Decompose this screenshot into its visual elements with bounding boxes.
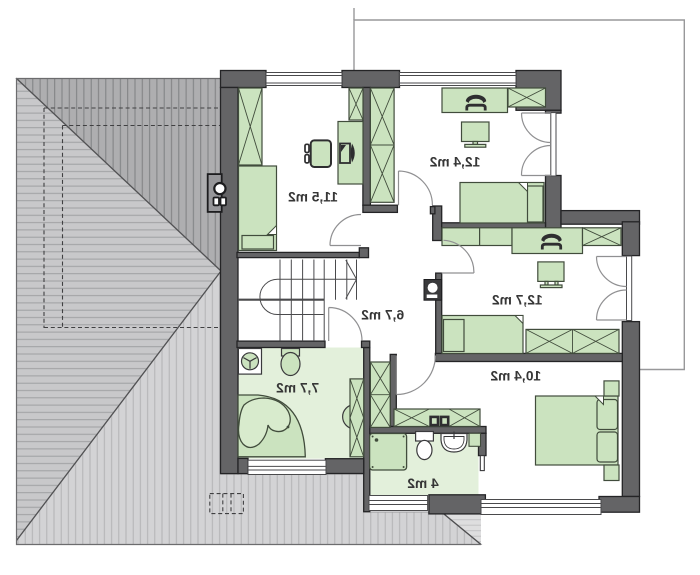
svg-text:6,7 m2: 6,7 m2: [361, 308, 404, 323]
svg-text:12,4 m2: 12,4 m2: [429, 155, 480, 170]
svg-text:12,7 m2: 12,7 m2: [492, 293, 543, 308]
svg-text:4 m2: 4 m2: [407, 476, 439, 491]
svg-text:7,7 m2: 7,7 m2: [276, 381, 319, 396]
svg-text:10,4 m2: 10,4 m2: [490, 369, 541, 384]
svg-text:11,5 m2: 11,5 m2: [288, 190, 338, 205]
